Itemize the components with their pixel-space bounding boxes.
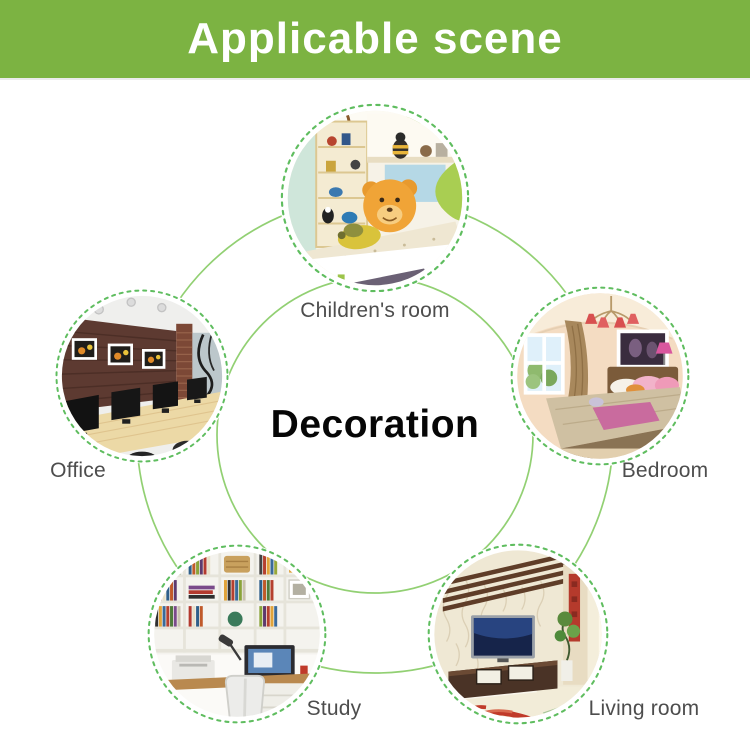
bedroom-photo — [507, 283, 693, 469]
living-room-photo — [424, 540, 612, 728]
office-photo — [52, 286, 232, 466]
children-room-label: Children's room — [300, 299, 449, 323]
center-title: Decoration — [271, 403, 480, 447]
study-photo — [144, 541, 330, 727]
scene-children-room — [277, 100, 473, 296]
scene-study — [144, 541, 330, 727]
study-label: Study — [307, 697, 362, 721]
bedroom-label: Bedroom — [622, 459, 709, 483]
product-infographic: Applicable scene — [0, 0, 750, 750]
living-room-label: Living room — [589, 697, 700, 721]
children-room-photo — [277, 100, 473, 296]
office-label: Office — [50, 459, 106, 483]
scene-living-room — [424, 540, 612, 728]
decoration-diagram: Children's room Office Bedroom Study Liv… — [0, 0, 750, 750]
scene-bedroom — [507, 283, 693, 469]
scene-office — [52, 286, 232, 466]
